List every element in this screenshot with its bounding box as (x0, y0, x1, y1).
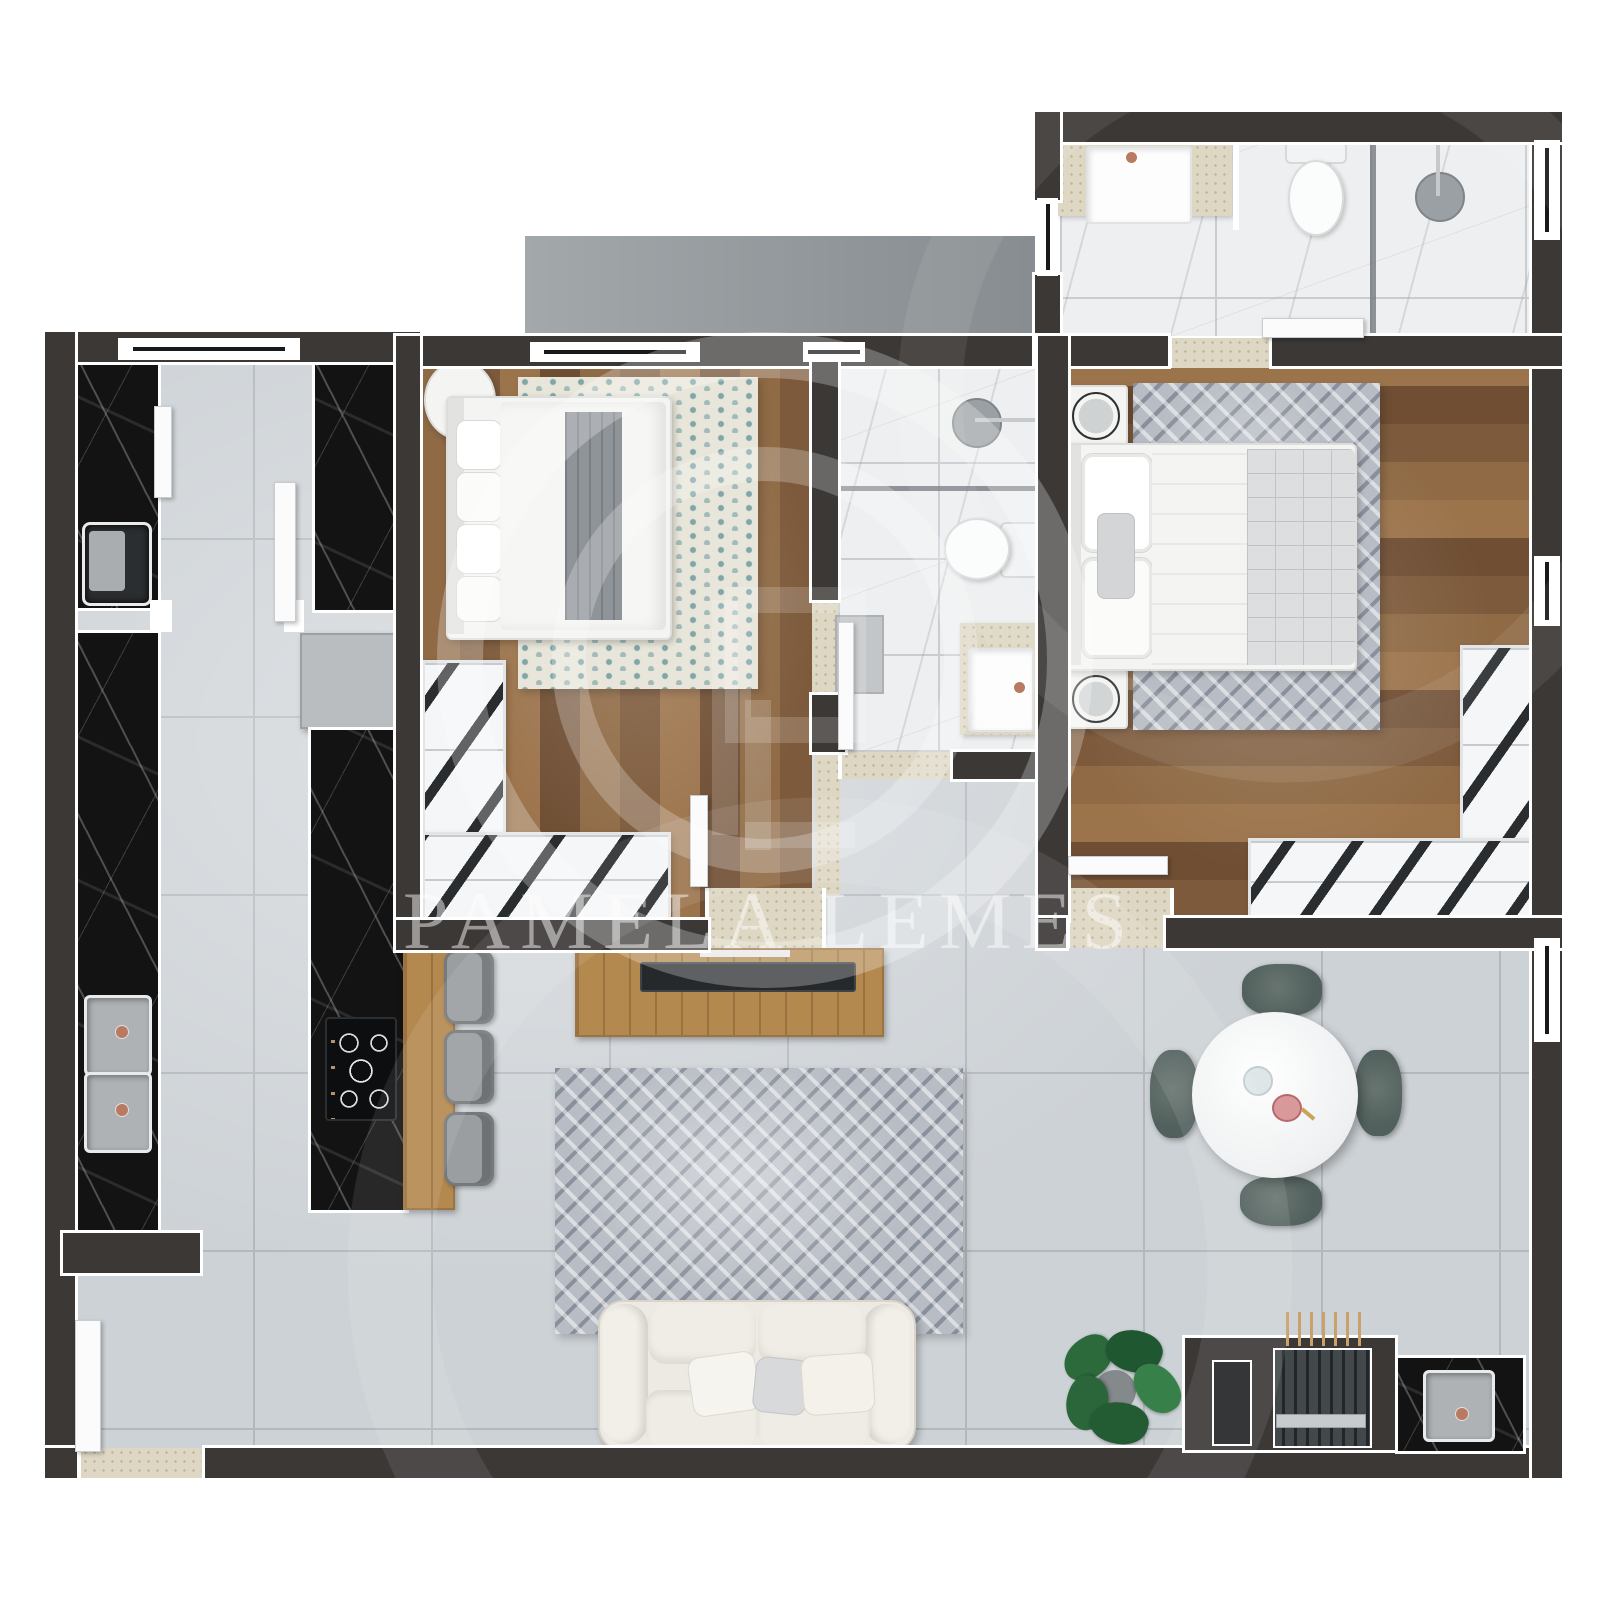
middle-bath-door-leaf (838, 622, 854, 750)
bbq-niche (1212, 1360, 1252, 1446)
laundry-sink-basin (89, 531, 125, 591)
suite-bath-shower-head (1415, 172, 1465, 222)
wall-bedroom1-bath-divider (812, 362, 838, 600)
bedroom2-lamp-bottom (1072, 675, 1120, 723)
bedroom2-headboard (1067, 445, 1081, 665)
wall-right (1532, 112, 1562, 1478)
balcony-sink (1423, 1370, 1495, 1442)
balcony-faucet (1456, 1408, 1468, 1420)
suite-bath-shower-arm (1436, 140, 1440, 196)
tv-panel (640, 962, 856, 992)
bedroom1-pillow-3 (456, 524, 502, 574)
middle-bath-toilet-bowl (944, 518, 1010, 580)
dining-chair-bottom (1240, 1176, 1322, 1226)
bedroom2-wardrobe-vertical (1460, 645, 1543, 843)
kitchen-faucet-1 (116, 1026, 128, 1038)
wall-bedroom1-bottom (396, 920, 708, 950)
kitchen-window (118, 338, 300, 360)
threshold-entry-door (77, 1448, 213, 1478)
dining-chair-right (1355, 1050, 1402, 1136)
bedroom2-accent-pillow (1097, 513, 1135, 599)
wall-suite-bath-top (1035, 112, 1562, 142)
bedroom1-pillow-1 (456, 420, 502, 470)
bedroom1-throw-blanket (565, 412, 622, 620)
cooktop (325, 1017, 397, 1121)
soundbar (700, 950, 790, 957)
wall-suite-bath-left-a (1035, 112, 1060, 200)
wall-bedroom2-bottom-a (1038, 918, 1066, 948)
service-door-leaf-2 (274, 482, 296, 622)
suite-bath-sink (1086, 146, 1192, 224)
dining-chair-left (1150, 1050, 1198, 1138)
wall-left (45, 332, 75, 1478)
bar-stool-2 (444, 1030, 494, 1104)
middle-bath-shower-arm (975, 418, 1035, 422)
threshold-bedroom1-door (705, 888, 826, 950)
bedroom2-bed (1065, 443, 1357, 671)
middle-bath-faucet (1014, 682, 1025, 693)
sofa-armrest-left (602, 1304, 648, 1444)
kitchen-island (308, 727, 409, 1213)
bedroom1-bed (446, 396, 672, 640)
sofa-pillow-1 (686, 1350, 762, 1419)
bedroom1-door-leaf (690, 795, 708, 887)
service-door-leaf-1 (154, 406, 172, 498)
washer-appliance (300, 633, 402, 729)
wall-bottom (205, 1448, 1562, 1478)
threshold-suite-bathroom-door (1168, 338, 1280, 368)
wall-kitchen-bedroom1-divider (396, 336, 420, 950)
bedroom2-nightstand-bottom (1062, 668, 1128, 729)
table-pink-bowl (1272, 1094, 1302, 1122)
bar-stool-1 (444, 950, 494, 1024)
suite-bath-shower-glass (1370, 142, 1376, 334)
bedroom1-pillow-2 (456, 472, 502, 522)
bedroom2-wardrobe-horizontal (1248, 838, 1543, 924)
bedroom2-door-leaf (1068, 856, 1168, 875)
dining-chair-top (1242, 964, 1322, 1016)
threshold-middle-bathroom-door (838, 752, 963, 779)
suite-bathroom-shaft-window (1037, 198, 1058, 276)
wall-bedroom2-left (1038, 336, 1068, 920)
bar-stool-3 (444, 1112, 494, 1186)
sofa (598, 1300, 916, 1452)
service-door-jamb-left (150, 600, 172, 632)
wall-top-main (420, 336, 1060, 366)
bbq-skewer-handles (1280, 1312, 1364, 1346)
middle-bath-shower-glass (838, 486, 1038, 491)
bedroom1-wardrobe-horizontal (422, 832, 671, 926)
wall-kitchen-stub (63, 1233, 200, 1273)
entry-door-leaf (75, 1320, 101, 1452)
floor-plan-render: PAMELA LEMES (0, 0, 1600, 1600)
laundry-sink (82, 522, 152, 606)
right-wall-window-bath (1534, 140, 1560, 240)
suite-bath-door-leaf (1262, 318, 1364, 338)
right-wall-window-bedroom2 (1534, 556, 1560, 626)
suite-bath-toilet-bowl (1288, 160, 1344, 236)
table-glass-cup (1243, 1066, 1273, 1096)
dining-table (1192, 1012, 1358, 1178)
suite-bath-partition (1233, 134, 1239, 230)
bbq-tray (1276, 1414, 1366, 1428)
bedroom1-pillow-4 (456, 576, 502, 622)
wall-suite-bath-left-b (1035, 275, 1060, 340)
middle-bathroom-window (803, 342, 865, 362)
bedroom1-window (530, 342, 700, 362)
bedroom2-nightstand-top (1062, 385, 1128, 446)
counter-right-upper (312, 360, 406, 613)
kitchen-faucet-2 (116, 1104, 128, 1116)
bedroom2-lamp-top (1072, 392, 1120, 440)
bedroom1-wardrobe-vertical (422, 660, 506, 838)
living-room-rug (555, 1068, 963, 1334)
bedroom2-quilt (1247, 449, 1355, 665)
wall-suite-bath-bottom-b (1272, 336, 1562, 366)
concrete-slab (525, 236, 1035, 338)
suite-bath-faucet (1126, 152, 1137, 163)
threshold-bedroom2-door (1066, 888, 1174, 948)
sofa-pillow-3 (800, 1352, 876, 1417)
right-wall-window-living (1534, 938, 1560, 1042)
wall-bedroom2-bottom-b (1166, 918, 1562, 948)
bedroom2-duvet (1152, 449, 1252, 665)
middle-bath-shower-head (952, 398, 1002, 448)
bbq-grill (1273, 1348, 1372, 1448)
wall-bottom-left-corner (45, 1448, 77, 1478)
